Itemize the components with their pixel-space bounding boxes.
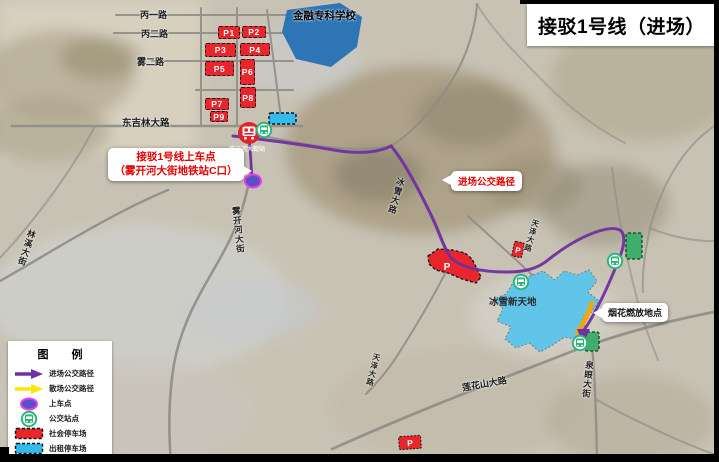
ice-snow-world-label: 冰雪新天地 [489, 294, 537, 308]
legend-title: 图 例 [14, 346, 106, 362]
exit-route-arrow-icon [14, 383, 44, 395]
enter-route-callout-text: 进场公交路径 [458, 177, 515, 188]
boarding-point-icon [14, 397, 44, 411]
parking-lot-p8: P8 [240, 87, 256, 108]
road-label-dongjilin: 东吉林大路 [122, 115, 170, 129]
fireworks-callout-text: 烟花燃放地点 [608, 308, 662, 318]
bus-stop-icon [14, 410, 44, 428]
parking-lot-p6: P6 [240, 59, 255, 85]
photo-edge-right [714, 0, 719, 462]
parking-lot-p5: P5 [205, 61, 234, 76]
parking-lot-p3: P3 [205, 43, 236, 57]
parking-p-label: P [444, 262, 451, 273]
parking-p-label: P [407, 438, 414, 448]
parking-lot-p4: P4 [240, 43, 270, 56]
road-label-wuer: 雾二路 [137, 55, 164, 68]
taxi-parking-area [269, 113, 296, 124]
legend-item-label: 上车点 [49, 398, 72, 409]
fireworks-site-callout: 烟花燃放地点 [602, 303, 668, 322]
callout-pointer [243, 166, 252, 176]
callout-pointer [442, 175, 451, 185]
parking-lot-p2: P2 [242, 26, 266, 38]
page-title: 接驳1号线（进场） [527, 4, 716, 46]
bus-terminal-area [626, 233, 642, 259]
legend-item-public-parking: 社会停车场 [14, 426, 106, 441]
boarding-callout-line1: 接驳1号线上车点 [110, 151, 242, 165]
photo-edge-corner [0, 447, 9, 462]
parking-lot-p1: P1 [218, 26, 240, 39]
legend-item-label: 散场公交路径 [49, 383, 94, 394]
callout-pointer [593, 308, 602, 318]
legend: 图 例 进场公交路径 散场公交路径 上车点 公交站点 [8, 341, 112, 462]
legend-item-bus-stop: 公交站点 [14, 411, 106, 426]
bus-stop-icon [257, 123, 271, 137]
photo-edge-top [520, 0, 719, 4]
legend-item-label: 出租停车场 [49, 443, 87, 454]
shuttle-route-map: P P P [0, 0, 719, 462]
legend-item-enter-route: 进场公交路径 [14, 366, 106, 381]
boarding-point-callout: 接驳1号线上车点 （雾开河大街地铁站C口） [108, 148, 244, 181]
enter-route-arrow-icon [14, 368, 44, 380]
boarding-callout-line2: （雾开河大街地铁站C口） [110, 165, 242, 179]
bus-stop-icon [608, 254, 622, 268]
legend-item-label: 进场公交路径 [49, 368, 94, 379]
enter-route-callout: 进场公交路径 [451, 171, 522, 191]
boarding-point-dot [245, 175, 261, 188]
bus-stop-icon [514, 275, 528, 289]
road-label-bingyi: 丙一路 [140, 8, 167, 21]
legend-item-label: 公交站点 [49, 413, 79, 424]
school-label: 金融专科学校 [293, 8, 356, 23]
legend-item-exit-route: 散场公交路径 [14, 381, 106, 396]
legend-item-label: 社会停车场 [49, 428, 87, 439]
parking-lot-p7: P7 [205, 98, 229, 110]
public-parking-marker: P [399, 435, 422, 450]
public-parking-swatch-icon [14, 427, 44, 440]
parking-lot-p9: P9 [210, 111, 228, 122]
photo-edge-bottom [0, 454, 719, 462]
road-label-binger: 丙二路 [141, 27, 168, 40]
bus-stop-icon [573, 336, 587, 350]
